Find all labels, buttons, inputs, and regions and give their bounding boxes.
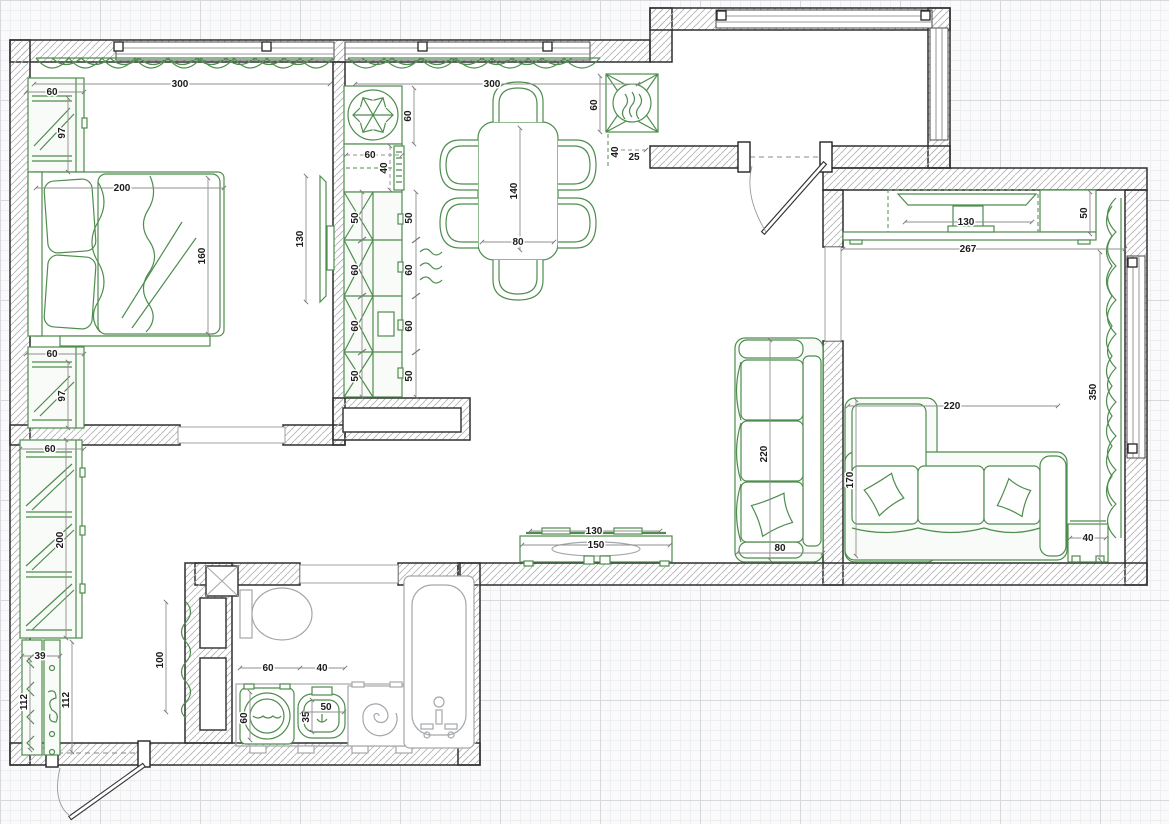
cabinet-handle-icon	[398, 368, 403, 378]
seat-cushion	[918, 466, 984, 524]
svg-text:150: 150	[588, 540, 605, 551]
window-handle-icon	[1128, 258, 1137, 267]
floorplan-canvas: 300 60 97 200 160 130 60 97	[0, 0, 1169, 824]
hallway-wardrobe[interactable]	[20, 440, 85, 638]
living-room-opening[interactable]	[825, 247, 841, 341]
apartment-floor	[10, 8, 1147, 765]
armrest	[1040, 456, 1066, 556]
vent-shaft	[206, 566, 238, 596]
armrest	[739, 340, 803, 358]
svg-text:160: 160	[197, 247, 208, 264]
dining-chair[interactable]	[493, 82, 543, 122]
svg-text:140: 140	[509, 182, 520, 199]
svg-text:50: 50	[350, 370, 361, 382]
dryer[interactable]	[348, 682, 406, 746]
svg-text:200: 200	[114, 183, 131, 194]
console-foot	[850, 240, 862, 244]
svg-text:350: 350	[1088, 383, 1099, 400]
dining-chair[interactable]	[558, 140, 596, 190]
window-handle-icon	[1128, 444, 1137, 453]
faucet-icon	[436, 710, 442, 724]
window-handle-icon	[717, 11, 726, 20]
wall-niche	[343, 408, 461, 432]
console-foot	[660, 561, 669, 566]
wardrobe-handle-icon	[80, 526, 85, 535]
svg-text:130: 130	[295, 230, 306, 247]
svg-text:220: 220	[944, 401, 961, 412]
bed-bench	[60, 336, 210, 346]
svg-text:40: 40	[1082, 533, 1094, 544]
window-handle-icon	[921, 11, 930, 20]
svg-text:50: 50	[350, 212, 361, 224]
svg-text:25: 25	[628, 152, 640, 163]
armrest	[739, 542, 803, 558]
wardrobe-handle-icon	[80, 468, 85, 477]
balcony-window-right[interactable]	[930, 28, 948, 140]
svg-text:50: 50	[404, 212, 415, 224]
sofa-back	[803, 356, 821, 546]
svg-text:60: 60	[364, 150, 376, 161]
svg-text:60: 60	[239, 712, 250, 724]
table-foot	[1072, 556, 1080, 562]
svg-text:60: 60	[404, 320, 415, 332]
cabinet-handle-icon	[398, 262, 403, 272]
svg-text:60: 60	[404, 264, 415, 276]
window-handle-icon	[418, 42, 427, 51]
toilet[interactable]	[240, 588, 312, 640]
seat-cushion	[741, 421, 803, 481]
bathroom-door-opening[interactable]	[300, 565, 398, 583]
faucet-handle-icon	[421, 724, 433, 729]
pedestal	[584, 556, 594, 564]
pillow	[44, 178, 97, 253]
pedestal	[600, 556, 610, 564]
balcony-window-top[interactable]	[716, 10, 932, 28]
svg-text:97: 97	[57, 390, 68, 402]
dining-chair[interactable]	[440, 140, 478, 190]
cutting-board	[378, 312, 394, 336]
bedroom-window[interactable]	[114, 42, 334, 60]
dining-chair[interactable]	[558, 198, 596, 248]
wardrobe-handle-icon	[80, 584, 85, 593]
window-handle-icon	[262, 42, 271, 51]
svg-text:50: 50	[404, 370, 415, 382]
console-foot	[1078, 240, 1090, 244]
svg-text:300: 300	[172, 79, 189, 90]
svg-text:50: 50	[320, 702, 332, 713]
tv-mount	[327, 226, 334, 270]
dining-chair[interactable]	[493, 260, 543, 300]
svg-text:60: 60	[350, 264, 361, 276]
wall-niche	[200, 658, 226, 730]
wall-niche	[200, 598, 226, 648]
svg-text:80: 80	[774, 543, 786, 554]
seat-cushion	[741, 360, 803, 420]
bed[interactable]	[28, 172, 224, 346]
svg-text:80: 80	[512, 237, 524, 248]
window-handle-icon	[114, 42, 123, 51]
svg-text:60: 60	[46, 349, 58, 360]
fridge[interactable]	[344, 86, 402, 144]
svg-text:220: 220	[759, 445, 770, 462]
entrance-door[interactable]	[46, 741, 150, 820]
svg-text:60: 60	[46, 87, 58, 98]
svg-text:40: 40	[316, 663, 328, 674]
svg-text:40: 40	[379, 162, 390, 174]
headboard	[28, 172, 42, 336]
svg-text:60: 60	[262, 663, 274, 674]
svg-text:112: 112	[61, 691, 72, 708]
svg-text:130: 130	[586, 526, 603, 537]
bathtub[interactable]	[404, 576, 474, 748]
window-handle-icon	[543, 42, 552, 51]
svg-text:50: 50	[1079, 207, 1090, 219]
kitchen-window[interactable]	[345, 42, 590, 60]
bedroom-door-opening[interactable]	[178, 427, 285, 443]
door-swing-arc	[58, 768, 70, 816]
console-foot	[524, 561, 533, 566]
svg-text:60: 60	[589, 99, 600, 111]
cabinet-handle-icon	[398, 214, 403, 224]
svg-text:60: 60	[350, 320, 361, 332]
faucet-handle-icon	[445, 724, 457, 729]
svg-text:60: 60	[403, 110, 414, 122]
svg-text:39: 39	[34, 651, 46, 662]
wardrobe-handle-icon	[82, 118, 87, 128]
dining-chair[interactable]	[440, 198, 478, 248]
svg-text:60: 60	[44, 444, 56, 455]
pillow	[44, 254, 97, 329]
hall-sofa[interactable]	[735, 338, 823, 562]
svg-text:130: 130	[958, 217, 975, 228]
door-leaf	[69, 763, 145, 819]
svg-text:267: 267	[960, 244, 977, 255]
svg-text:200: 200	[55, 531, 66, 548]
cabinet-handle-icon	[398, 320, 403, 330]
svg-text:100: 100	[155, 651, 166, 668]
svg-text:300: 300	[484, 79, 501, 90]
svg-text:170: 170	[845, 471, 856, 488]
svg-text:35: 35	[301, 711, 312, 723]
living-window-right[interactable]	[1127, 256, 1145, 458]
svg-text:40: 40	[610, 146, 621, 158]
svg-text:112: 112	[19, 693, 30, 710]
svg-text:97: 97	[57, 127, 68, 139]
